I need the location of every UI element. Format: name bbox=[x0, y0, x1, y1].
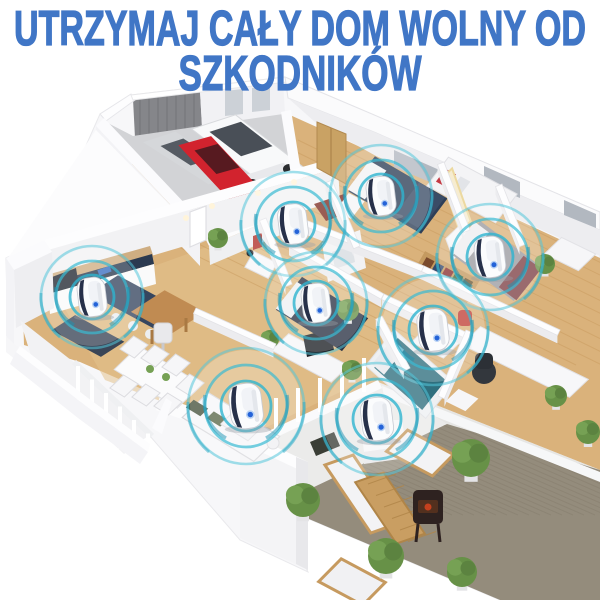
svg-text:SZKODNIKÓW: SZKODNIKÓW bbox=[179, 46, 423, 101]
